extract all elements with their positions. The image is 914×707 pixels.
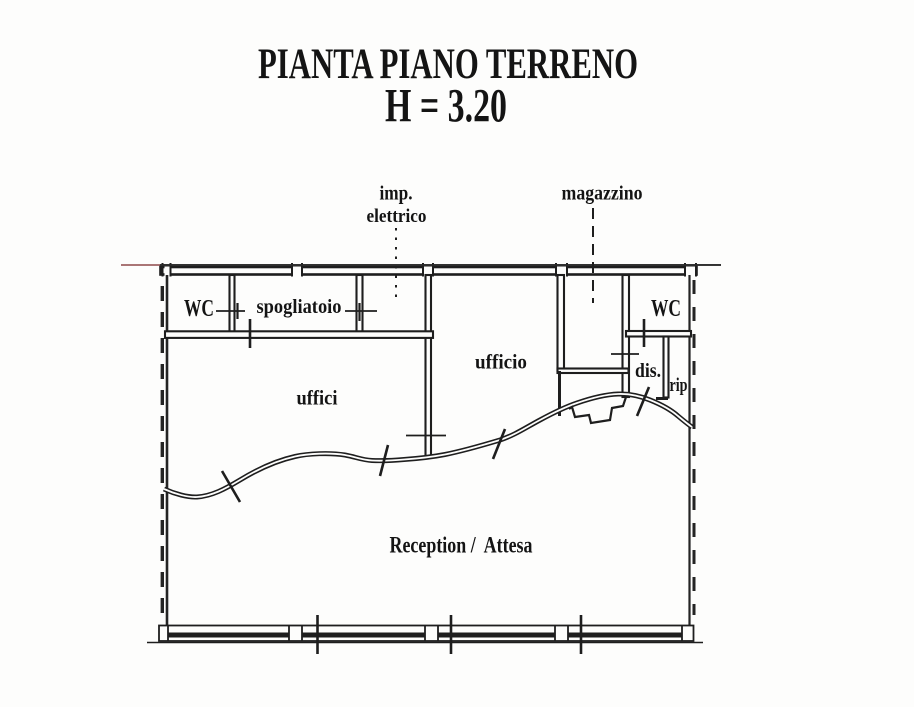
svg-text:WC: WC — [651, 295, 681, 322]
svg-text:rip: rip — [670, 375, 688, 396]
svg-text:elettrico: elettrico — [367, 206, 427, 227]
svg-text:spogliatoio: spogliatoio — [257, 296, 342, 318]
svg-text:magazzino: magazzino — [562, 183, 643, 205]
svg-text:WC: WC — [184, 295, 214, 322]
svg-text:H = 3.20: H = 3.20 — [385, 80, 507, 133]
svg-text:uffici: uffici — [297, 386, 338, 410]
svg-text:Reception / Attesa: Reception / Attesa — [390, 533, 533, 558]
svg-text:imp.: imp. — [380, 183, 413, 205]
svg-text:ufficio: ufficio — [475, 350, 527, 374]
svg-text:dis.: dis. — [635, 361, 661, 382]
